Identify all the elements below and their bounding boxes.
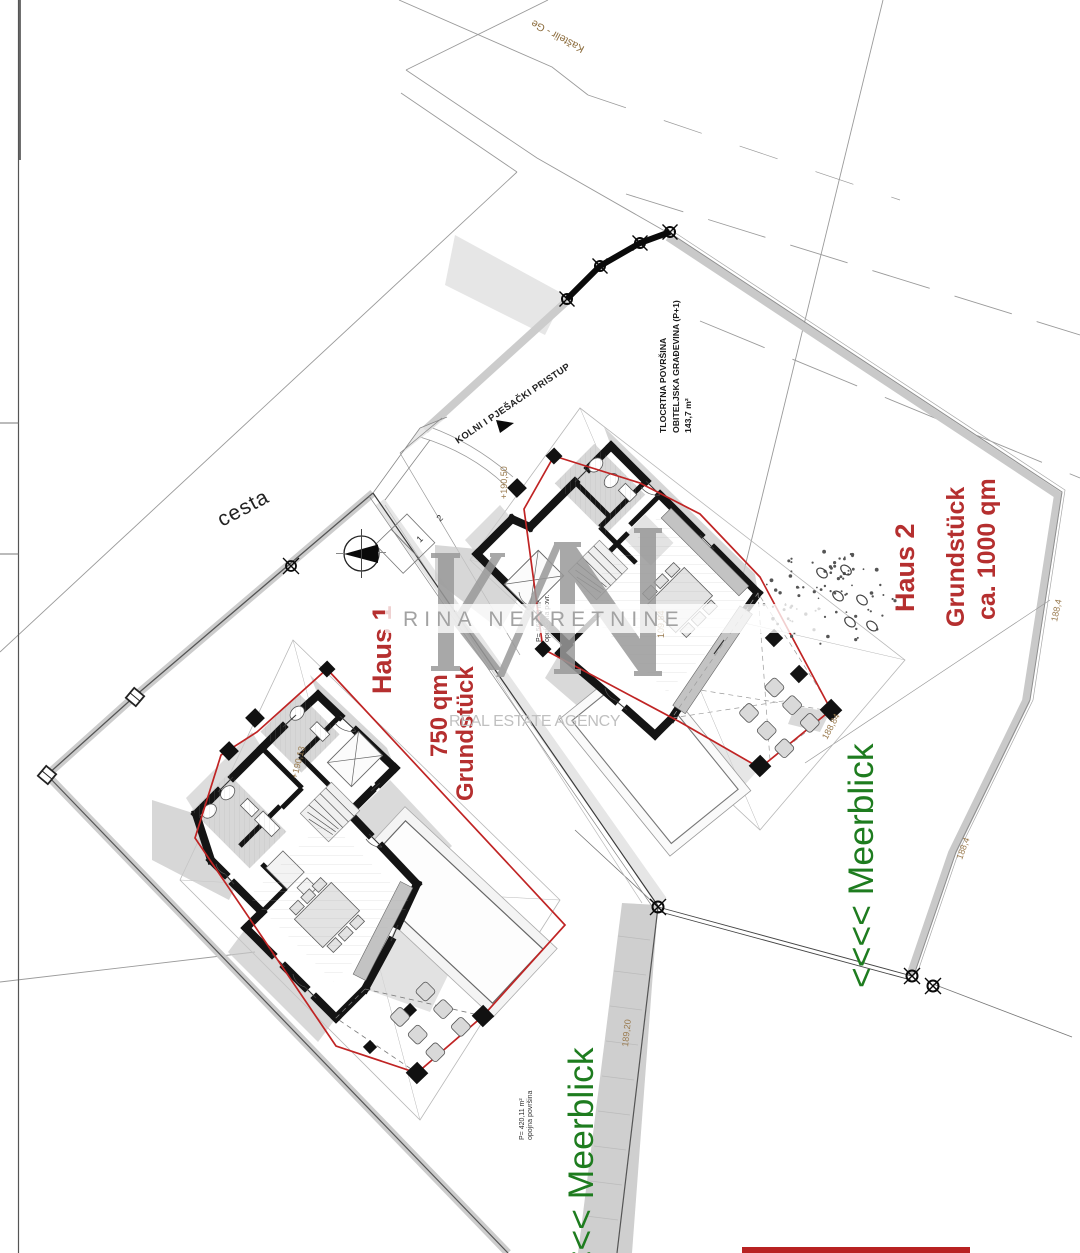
svg-text:OBITELJSKA GRAĐEVINA (P+1): OBITELJSKA GRAĐEVINA (P+1) <box>671 300 681 433</box>
svg-text:<<<< Meerblick: <<<< Meerblick <box>841 743 881 988</box>
svg-text:TLOCRTNA POVRŠINA: TLOCRTNA POVRŠINA <box>657 337 668 433</box>
svg-text:Grundstück: Grundstück <box>452 666 479 801</box>
svg-text:Grundstück: Grundstück <box>942 487 970 627</box>
svg-text:P= 420,11 m²: P= 420,11 m² <box>519 1098 526 1140</box>
svg-text:opojna površina: opojna površina <box>527 1090 534 1140</box>
svg-text:RINA NEKRETNINE: RINA NEKRETNINE <box>403 608 685 631</box>
svg-text:<<<< Meerblick: <<<< Meerblick <box>561 1047 601 1253</box>
svg-text:ca. 1000 qm: ca. 1000 qm <box>973 478 1001 620</box>
svg-text:143,7 m²: 143,7 m² <box>683 398 693 433</box>
svg-text:REAL ESTATE AGENCY: REAL ESTATE AGENCY <box>449 713 621 730</box>
svg-text:Haus 2: Haus 2 <box>890 523 920 612</box>
svg-text:+190,50: +190,50 <box>499 466 509 499</box>
